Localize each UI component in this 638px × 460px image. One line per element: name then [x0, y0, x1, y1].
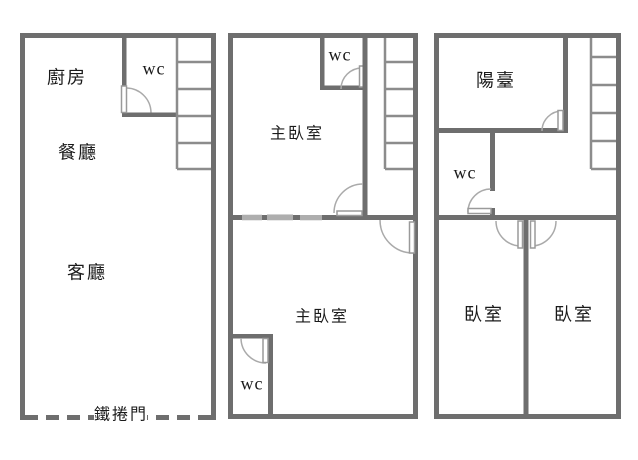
f3-wall-right	[616, 33, 621, 419]
f3-double-door-left-leaf	[518, 221, 523, 248]
f2-master-top-door-arc	[334, 184, 363, 213]
f1-wc-wall-horizontal	[122, 113, 177, 118]
balcony-label: 陽臺	[476, 70, 516, 90]
floor-3-panel: 陽臺 wc 臥室 臥室	[434, 33, 621, 419]
f2-wc-bottom-door-leaf	[263, 339, 268, 363]
f3-balcony-door-leaf	[558, 111, 563, 131]
f1-wall-left	[20, 33, 25, 420]
f1-wc-door-leaf	[122, 86, 127, 113]
living-room-label: 客廳	[67, 262, 107, 282]
floor-plan-svg: 廚房 wc 餐廳 客廳 鐵捲門	[0, 0, 638, 460]
bedroom-right-label: 臥室	[554, 304, 594, 324]
f3-wc-label: wc	[454, 162, 477, 182]
bedroom-left-label: 臥室	[464, 304, 504, 324]
f3-wall-left	[434, 33, 439, 419]
f1-wc-door-arc	[126, 88, 151, 113]
f1-wc-wall-vertical	[122, 38, 127, 86]
f1-wc-label: wc	[143, 58, 166, 78]
f2-wc-bottom-label: wc	[241, 373, 264, 393]
roller-shutter-label: 鐵捲門	[94, 405, 148, 424]
f2-wc-top-wall-vertical	[320, 38, 325, 88]
kitchen-label: 廚房	[47, 66, 87, 87]
f2-wc-top-label: wc	[329, 44, 352, 64]
f3-balcony-wall-horizontal	[434, 128, 568, 133]
f1-staircase	[177, 38, 211, 169]
dining-room-label: 餐廳	[58, 142, 98, 162]
f3-wc-door-leaf	[468, 209, 491, 214]
floor-plan-page: 廚房 wc 餐廳 客廳 鐵捲門	[0, 0, 638, 460]
f3-staircase	[591, 38, 616, 169]
master-bedroom-bottom-label: 主臥室	[295, 308, 349, 326]
f3-wall-top	[434, 33, 621, 38]
f2-master-bottom-door-arc	[380, 220, 413, 253]
f2-master-top-door-leaf	[337, 211, 362, 216]
watermark-smudge	[242, 214, 322, 221]
f3-bedroom-divider-wall	[524, 220, 529, 414]
f2-wall-top	[228, 33, 418, 38]
f2-staircase	[385, 38, 413, 169]
f3-wc-wall-vertical	[490, 133, 495, 191]
floor-2-panel: wc 主臥室 主臥室 wc	[228, 33, 418, 419]
f1-wall-right	[211, 33, 216, 420]
f3-wall-bottom	[434, 414, 621, 419]
f1-wall-top	[20, 33, 216, 38]
f3-double-door-right-leaf	[531, 221, 536, 248]
floor-1-panel: 廚房 wc 餐廳 客廳 鐵捲門	[20, 33, 216, 424]
master-bedroom-top-label: 主臥室	[270, 125, 324, 143]
f3-dividing-wall	[434, 215, 621, 220]
f2-stair-corridor-wall	[363, 38, 368, 218]
f2-wall-left	[228, 33, 233, 419]
f2-master-bottom-door-leaf	[410, 222, 415, 253]
f2-wall-bottom	[228, 414, 418, 419]
